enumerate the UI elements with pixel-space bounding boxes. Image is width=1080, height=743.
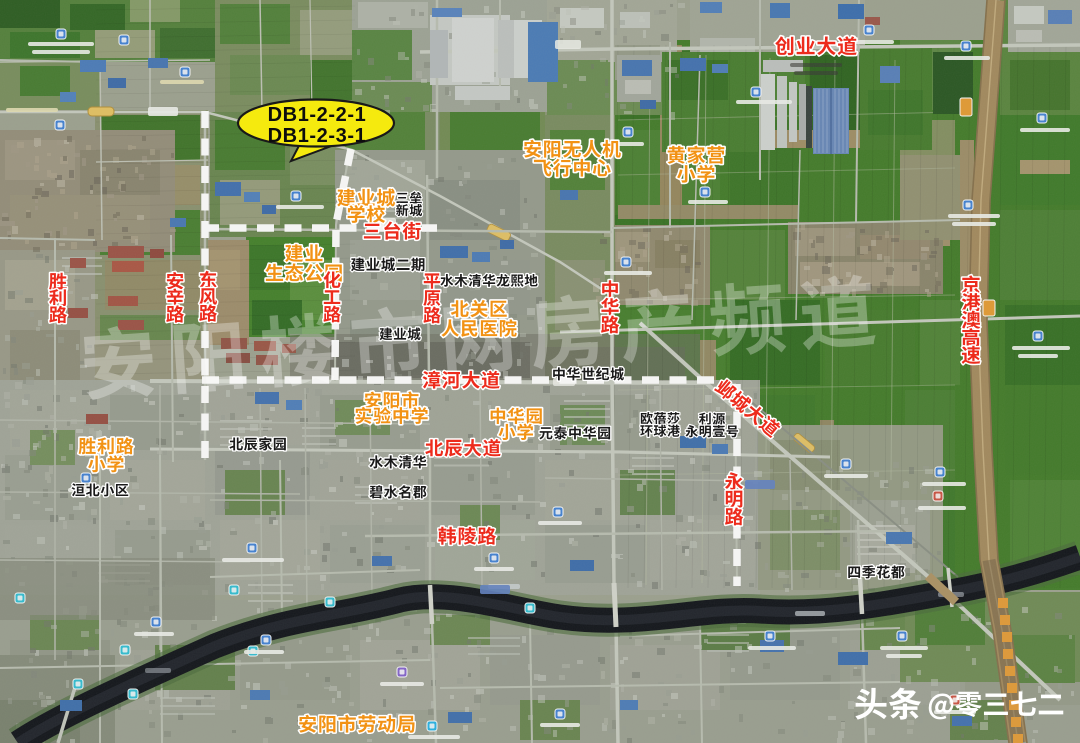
svg-text:DB1-2-3-1: DB1-2-3-1 bbox=[268, 125, 367, 147]
svg-text:DB1-2-2-1: DB1-2-2-1 bbox=[268, 104, 367, 126]
